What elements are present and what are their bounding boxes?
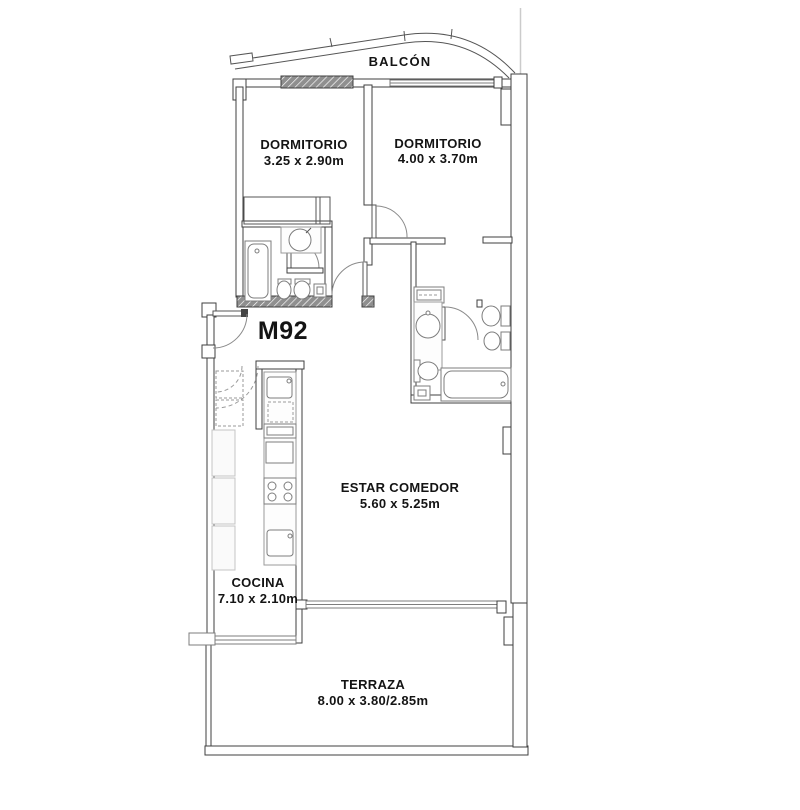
- terrace-left-wall: [206, 640, 211, 752]
- bedroom1-vestibule-door: [332, 262, 367, 296]
- bathroom1-fixtures: [245, 227, 326, 301]
- bedroom-divider-wall: [364, 85, 372, 205]
- refrigerator-cabinet: [266, 442, 293, 463]
- bathroom2-stub-wall: [477, 300, 482, 307]
- kitchen-top-wall: [256, 361, 304, 369]
- label-living-dims: 5.60 x 5.25m: [360, 496, 440, 511]
- bedroom2-south-wall-b: [483, 237, 512, 243]
- bedroom1-window: [281, 76, 353, 88]
- bidet-2: [484, 332, 510, 350]
- shower-drain-2: [414, 386, 430, 400]
- right-wall: [511, 74, 527, 603]
- bidet-1: [277, 279, 291, 299]
- terrace-bottom-wall: [205, 746, 528, 755]
- floor-plan: BALCÓN DORMITORIO 3.25 x 2.90m DORMITORI…: [0, 0, 800, 810]
- wall-pillar-living: [503, 427, 511, 454]
- bathroom2-fixtures: [414, 287, 511, 401]
- laundry-closet-wall: [256, 369, 262, 429]
- kitchen-folding-door: [216, 366, 258, 408]
- bathtub-1: [245, 241, 271, 301]
- hall-hatched-stub: [362, 296, 374, 307]
- hall-closet: [414, 287, 444, 303]
- oven: [264, 424, 296, 438]
- wall-pillar-terrace: [504, 617, 513, 645]
- terrace-sliding-door: [306, 601, 506, 613]
- kitchen-side-cabinets: [212, 430, 235, 570]
- washbasin-1: [281, 227, 321, 253]
- toilet-1: [294, 279, 310, 299]
- shower-drain-1: [314, 284, 326, 297]
- kitchen-window: [189, 633, 296, 645]
- label-terrace-name: TERRAZA: [341, 677, 406, 692]
- label-bedroom2-name: DORMITORIO: [394, 136, 481, 151]
- left-wall-block: [202, 345, 215, 358]
- bedroom2-south-wall-a: [370, 238, 445, 244]
- left-wall-upper: [236, 87, 243, 297]
- label-bedroom1-name: DORMITORIO: [260, 137, 347, 152]
- label-living-name: ESTAR COMEDOR: [341, 480, 460, 495]
- kitchen-fixtures: [212, 371, 296, 570]
- label-terrace-dims: 8.00 x 3.80/2.85m: [318, 693, 429, 708]
- bedroom2-door: [372, 205, 407, 238]
- right-wall-stub: [501, 89, 511, 125]
- bathtub-2: [441, 368, 511, 401]
- label-unit: M92: [258, 317, 308, 345]
- label-kitchen-name: COCINA: [231, 575, 284, 590]
- cooktop: [264, 478, 296, 504]
- kitchen-sink-lower: [267, 530, 293, 556]
- toilet-2: [482, 306, 510, 326]
- bedroom1-wardrobe: [244, 197, 330, 224]
- laundry-appliances: [216, 371, 243, 426]
- bathroom2-door: [441, 307, 478, 340]
- label-kitchen-dims: 7.10 x 2.10m: [218, 591, 298, 606]
- floor-plan-drawing: BALCÓN DORMITORIO 3.25 x 2.90m DORMITORI…: [0, 0, 800, 810]
- label-bedroom1-dims: 3.25 x 2.90m: [264, 153, 344, 168]
- entrance-door: [213, 309, 248, 348]
- kitchen-sink-upper: [267, 377, 292, 398]
- terrace-right-wall: [513, 601, 527, 747]
- label-balcony: BALCÓN: [369, 54, 432, 69]
- label-bedroom2-dims: 4.00 x 3.70m: [398, 151, 478, 166]
